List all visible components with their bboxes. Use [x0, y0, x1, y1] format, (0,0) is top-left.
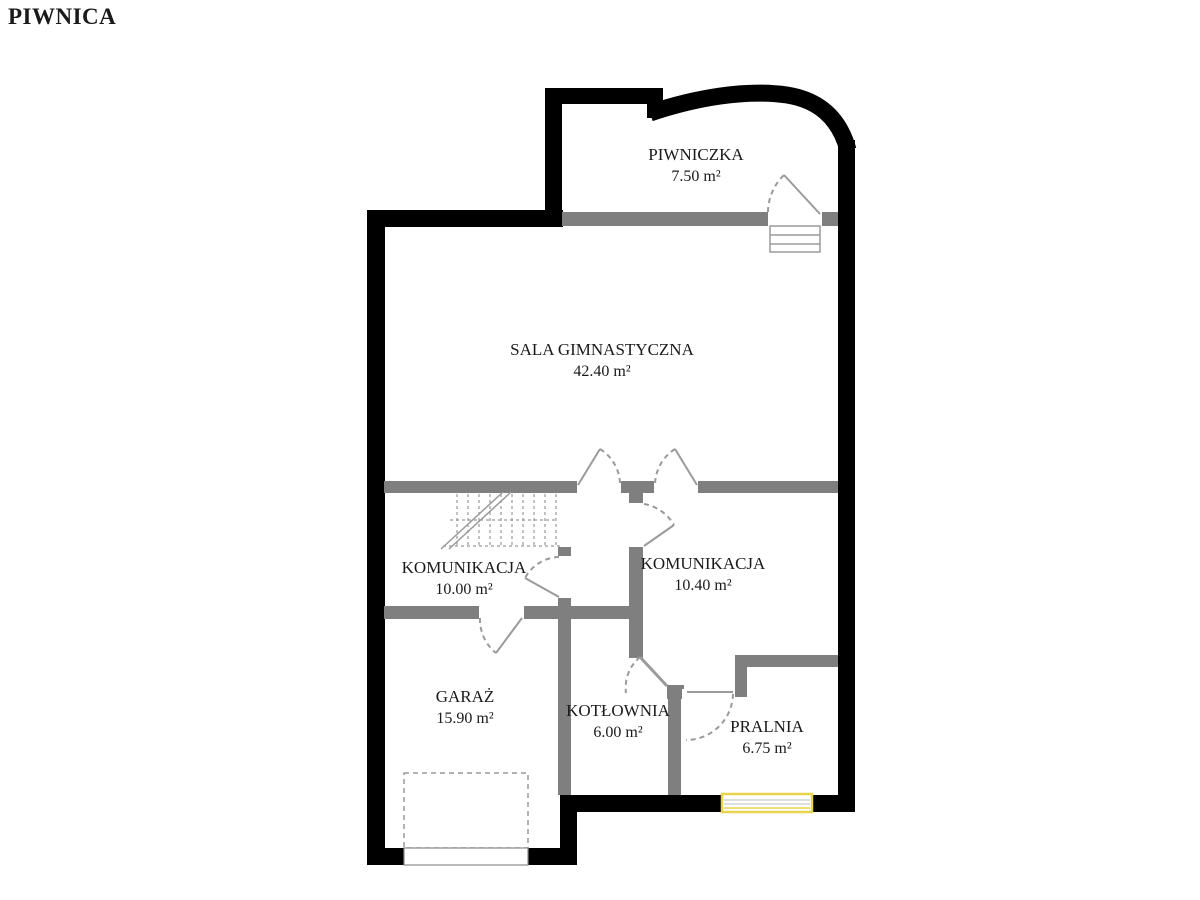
door-sala-left [578, 449, 620, 485]
room-name: SALA GIMNASTYCZNA [482, 339, 722, 361]
door-kom-divider [644, 504, 674, 546]
room-label-komunikacja-1: KOMUNIKACJA 10.00 m² [344, 557, 584, 601]
door-garage [480, 618, 522, 653]
door-sala-right [655, 449, 697, 485]
wall-pralnia-stub [735, 655, 747, 697]
basement-window [722, 794, 812, 812]
wall-piwniczka-left [545, 88, 562, 214]
door-kotlownia [626, 657, 667, 693]
floor-plan-page: PIWNICA [0, 0, 1200, 900]
room-area: 6.75 m² [647, 738, 887, 760]
room-name: PRALNIA [647, 716, 887, 738]
room-label-sala-gimnastyczna: SALA GIMNASTYCZNA 42.40 m² [482, 339, 722, 383]
room-area: 7.50 m² [576, 166, 816, 188]
wall-curved-top [650, 93, 848, 150]
room-area: 42.40 m² [482, 361, 722, 383]
room-name: PIWNICZKA [576, 144, 816, 166]
garage-door [404, 848, 528, 865]
room-name: KOMUNIKACJA [583, 553, 823, 575]
room-label-komunikacja-2: KOMUNIKACJA 10.40 m² [583, 553, 823, 597]
wall-right [838, 140, 855, 812]
room-name: KOMUNIKACJA [344, 557, 584, 579]
wall-main-left [367, 210, 385, 865]
wall-piwniczka-top [545, 88, 663, 104]
room-area: 10.00 m² [344, 579, 584, 601]
wall-pralnia-top [735, 655, 838, 667]
room-label-piwniczka: PIWNICZKA 7.50 m² [576, 144, 816, 188]
floor-plan-drawing [0, 0, 1200, 900]
garage-door-dashed-outline [404, 773, 528, 848]
stairs-piwniczka [770, 226, 820, 252]
wall-main-top [367, 210, 563, 227]
room-area: 10.40 m² [583, 575, 823, 597]
door-openings [479, 211, 822, 704]
stairs-main [441, 492, 560, 549]
room-label-pralnia: PRALNIA 6.75 m² [647, 716, 887, 760]
